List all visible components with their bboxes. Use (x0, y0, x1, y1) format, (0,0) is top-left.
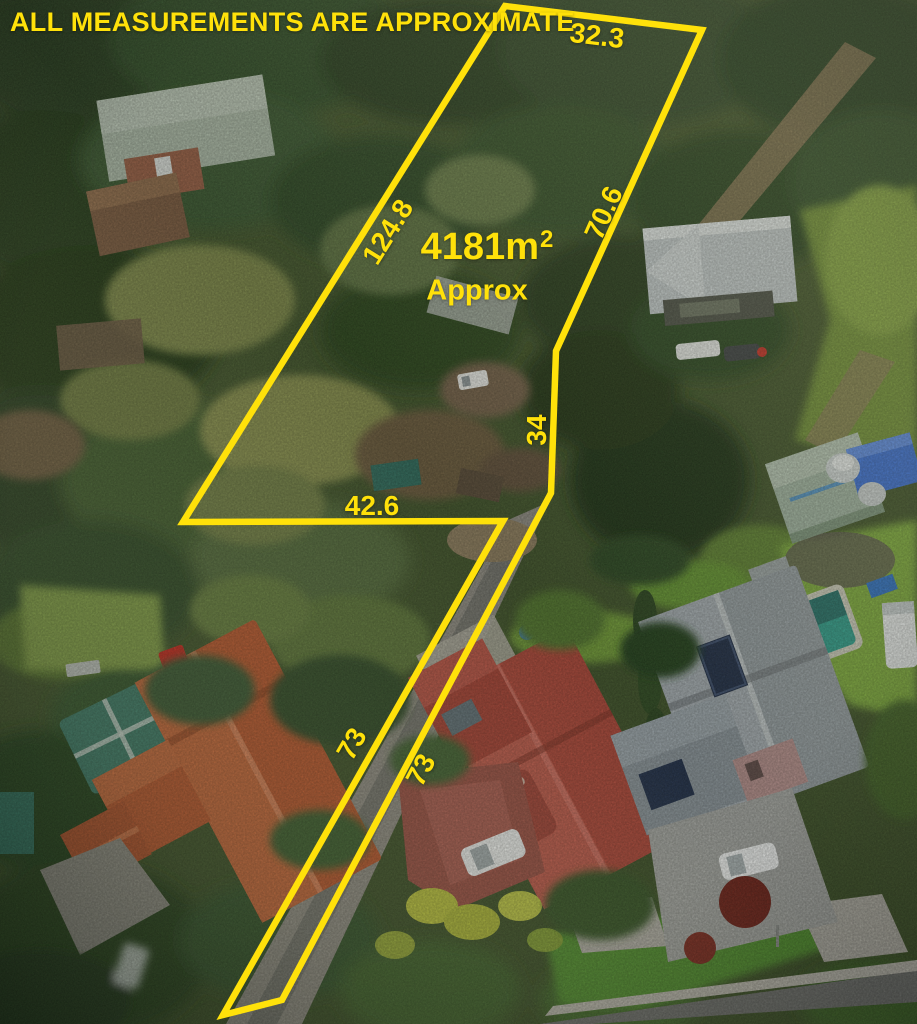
measurement-top-edge: 32.3 (568, 19, 626, 53)
measurement-inner-bottom-edge: 42.6 (345, 492, 400, 520)
boundary-overlay (0, 0, 917, 1024)
measurement-inner-right-edge: 34 (523, 414, 551, 445)
area-qualifier: Approx (426, 277, 528, 306)
area-label: 4181m2 (421, 228, 554, 266)
area-superscript: 2 (540, 226, 553, 253)
property-boundary (183, 6, 702, 1015)
aerial-photo: ALL MEASUREMENTS ARE APPROXIMATE 32.3 12… (0, 0, 917, 1024)
disclaimer-text: ALL MEASUREMENTS ARE APPROXIMATE (10, 9, 575, 36)
area-value: 4181m (421, 226, 539, 268)
